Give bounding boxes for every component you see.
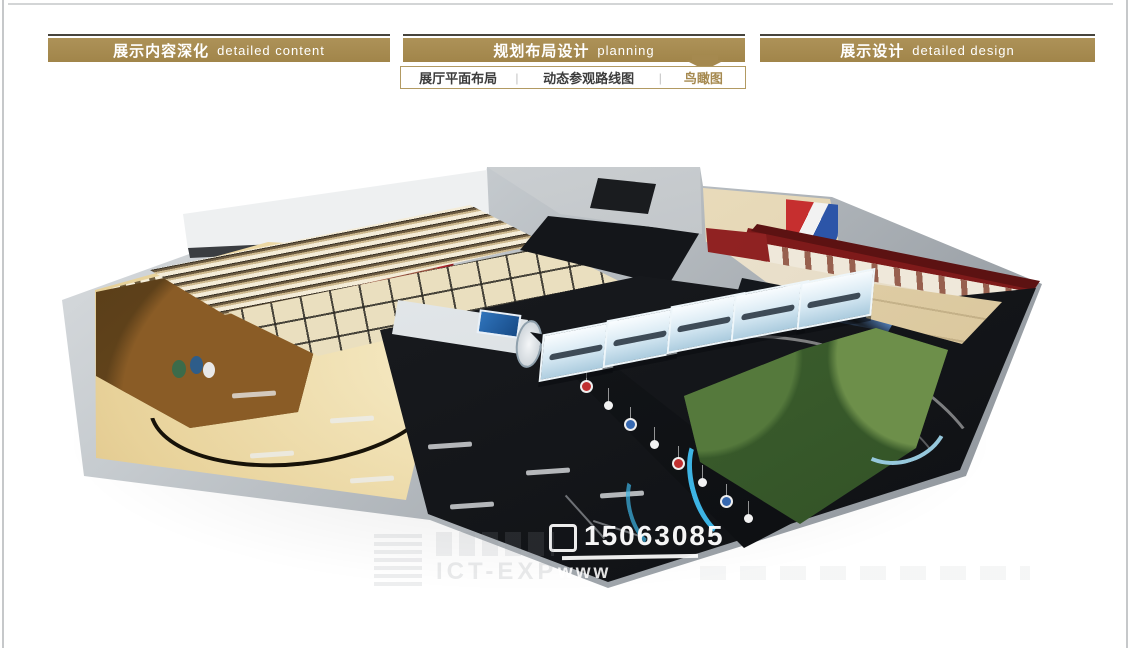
slide-page: 展示内容深化 detailed content 规划布局设计 planning … bbox=[0, 0, 1130, 648]
tab-detailed-design[interactable]: 展示设计 detailed design bbox=[760, 38, 1095, 62]
tab-accent-line bbox=[403, 34, 745, 36]
diorama-figure bbox=[172, 360, 186, 378]
planning-subnav: 展厅平面布局 | 动态参观路线图 | 鸟瞰图 bbox=[400, 66, 746, 89]
tab-label-zh: 展示设计 bbox=[840, 40, 904, 61]
timeline-badge bbox=[650, 440, 659, 449]
page-top-rule bbox=[8, 3, 1113, 5]
subnav-item-route-map[interactable]: 动态参观路线图 bbox=[518, 68, 658, 87]
subnav-item-floor-plan[interactable]: 展厅平面布局 bbox=[401, 68, 515, 87]
page-right-rule bbox=[1126, 0, 1128, 648]
watermark-faint-trail bbox=[700, 566, 1030, 580]
tab-accent-line bbox=[760, 34, 1095, 36]
diorama-figure bbox=[190, 356, 203, 374]
tab-label-zh: 展示内容深化 bbox=[113, 40, 209, 61]
watermark-url: www bbox=[558, 562, 611, 584]
tab-label-en: planning bbox=[597, 43, 654, 58]
tab-label-en: detailed design bbox=[912, 43, 1014, 58]
subnav-item-birds-eye-view[interactable]: 鸟瞰图 bbox=[662, 68, 745, 87]
watermark-faint-logo bbox=[374, 532, 422, 586]
tab-label-en: detailed content bbox=[217, 43, 325, 58]
watermark-faint-latin: ICT-EXP bbox=[436, 558, 557, 586]
tab-label-zh: 规划布局设计 bbox=[493, 40, 589, 61]
tab-accent-line bbox=[48, 34, 390, 36]
flag-logo-wall bbox=[786, 199, 838, 250]
tab-detailed-content[interactable]: 展示内容深化 detailed content bbox=[48, 38, 390, 62]
diorama-figure bbox=[203, 362, 215, 378]
timeline-badge bbox=[626, 420, 635, 429]
page-left-rule bbox=[2, 0, 4, 648]
timeline-badge bbox=[604, 401, 613, 410]
timeline-badge bbox=[582, 382, 591, 391]
timeline-badge bbox=[674, 459, 683, 468]
watermark-faint-chinese bbox=[436, 532, 554, 556]
watermark-phone-number: 15063085 bbox=[584, 520, 725, 552]
